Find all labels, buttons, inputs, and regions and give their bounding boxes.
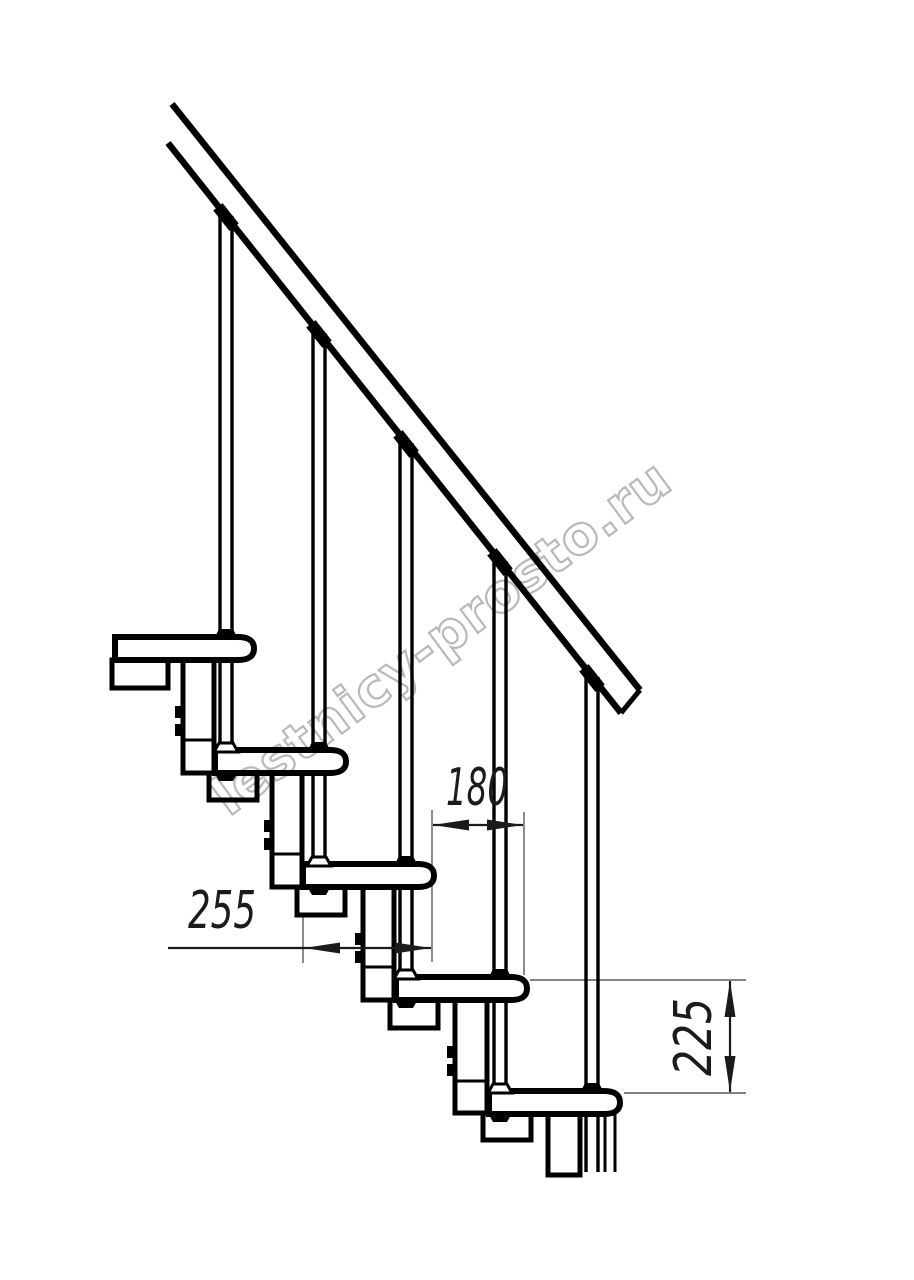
bolt-tab	[175, 706, 184, 718]
bolt-tab	[447, 1046, 456, 1058]
support-column	[363, 887, 394, 1000]
bolt-tab	[355, 951, 364, 963]
dimension-label-step-run: 180	[446, 758, 508, 818]
support-column	[455, 1000, 487, 1113]
dimension-label-riser-height: 225	[664, 998, 724, 1076]
bolt-tab	[264, 820, 273, 832]
support-column	[183, 660, 214, 773]
staircase-svg: lestnicy-prosto.ru180255225	[0, 0, 914, 1280]
baluster-foot	[307, 857, 331, 866]
baluster-foot	[488, 1084, 512, 1093]
bolt-tab	[175, 724, 184, 736]
baluster-foot	[394, 970, 418, 979]
bolt-tab	[355, 933, 364, 945]
tread	[115, 637, 254, 660]
bolt-tab	[447, 1064, 456, 1076]
baluster-foot	[214, 743, 238, 752]
dimension-label-tread-depth: 255	[188, 881, 256, 941]
technical-drawing-page: lestnicy-prosto.ru180255225	[0, 0, 914, 1280]
support-stub	[112, 660, 168, 688]
staircase-side-view-drawing: lestnicy-prosto.ru180255225	[0, 0, 914, 1280]
bolt-tab	[264, 838, 273, 850]
support-column	[548, 1114, 580, 1175]
